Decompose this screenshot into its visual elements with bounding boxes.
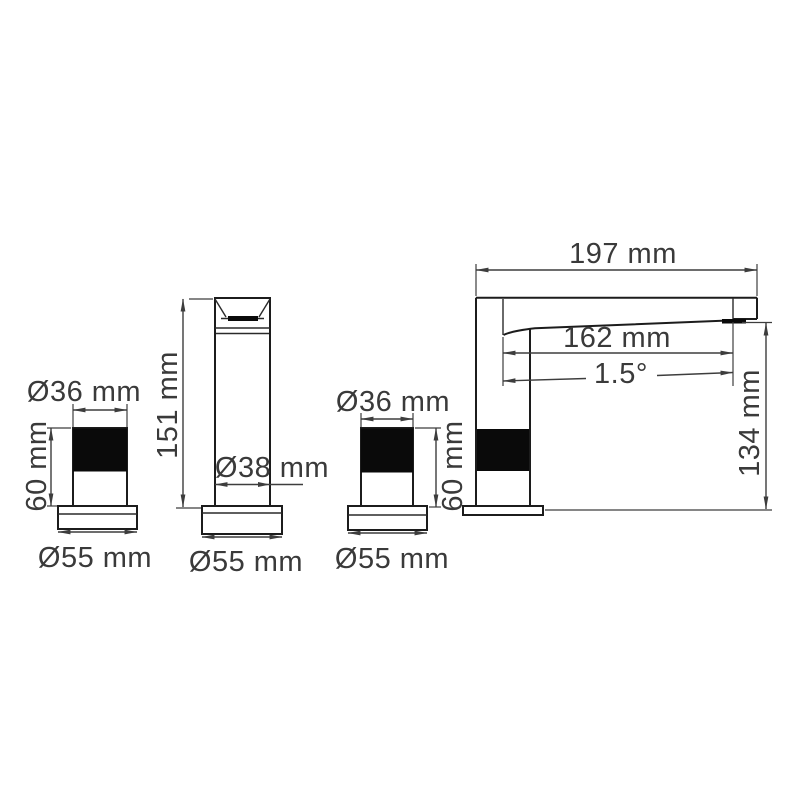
faucet-technical-drawing: Ø36 mm 60 mm Ø55 mm 151 mm Ø38 mm Ø55 mm <box>0 0 800 800</box>
left-handle-grip-band <box>73 429 127 472</box>
dim-label-column-diameter: Ø38 mm <box>215 452 329 484</box>
dim-label-left-handle-height: 60 mm <box>21 420 53 511</box>
right-handle-grip-band <box>361 429 413 473</box>
faucet-side-view: 197 mm 162 mm 1.5° 134 mm <box>463 238 772 515</box>
angle-line-right <box>657 373 733 376</box>
dim-label-column-height: 151 mm <box>152 351 184 459</box>
dim-label-right-handle-base-diameter: Ø55 mm <box>335 543 449 575</box>
dim-label-spout-angle: 1.5° <box>594 358 648 390</box>
dim-label-overall-height: 134 mm <box>734 369 766 477</box>
dim-label-right-handle-height: 60 mm <box>437 420 469 511</box>
dim-label-spout-reach: 162 mm <box>563 322 671 354</box>
right-handle-view: Ø36 mm 60 mm Ø55 mm <box>335 386 469 575</box>
dim-label-column-base-diameter: Ø55 mm <box>189 546 303 578</box>
spout-column-base <box>202 506 282 534</box>
dim-label-right-handle-diameter: Ø36 mm <box>336 386 450 418</box>
dim-label-left-handle-diameter: Ø36 mm <box>27 376 141 408</box>
dim-label-left-handle-base-diameter: Ø55 mm <box>38 542 152 574</box>
dim-label-total-length: 197 mm <box>569 238 677 270</box>
spout-column-view: 151 mm Ø38 mm Ø55 mm <box>152 298 329 578</box>
faucet-base-plate <box>463 506 543 515</box>
left-handle-view: Ø36 mm 60 mm Ø55 mm <box>21 376 152 574</box>
angle-line-left <box>503 379 586 382</box>
spout-outlet-slot <box>228 316 258 321</box>
left-handle-base <box>58 506 137 529</box>
drawing-svg: Ø36 mm 60 mm Ø55 mm 151 mm Ø38 mm Ø55 mm <box>0 0 800 800</box>
faucet-grip-band <box>477 429 529 471</box>
right-handle-base <box>348 506 427 530</box>
